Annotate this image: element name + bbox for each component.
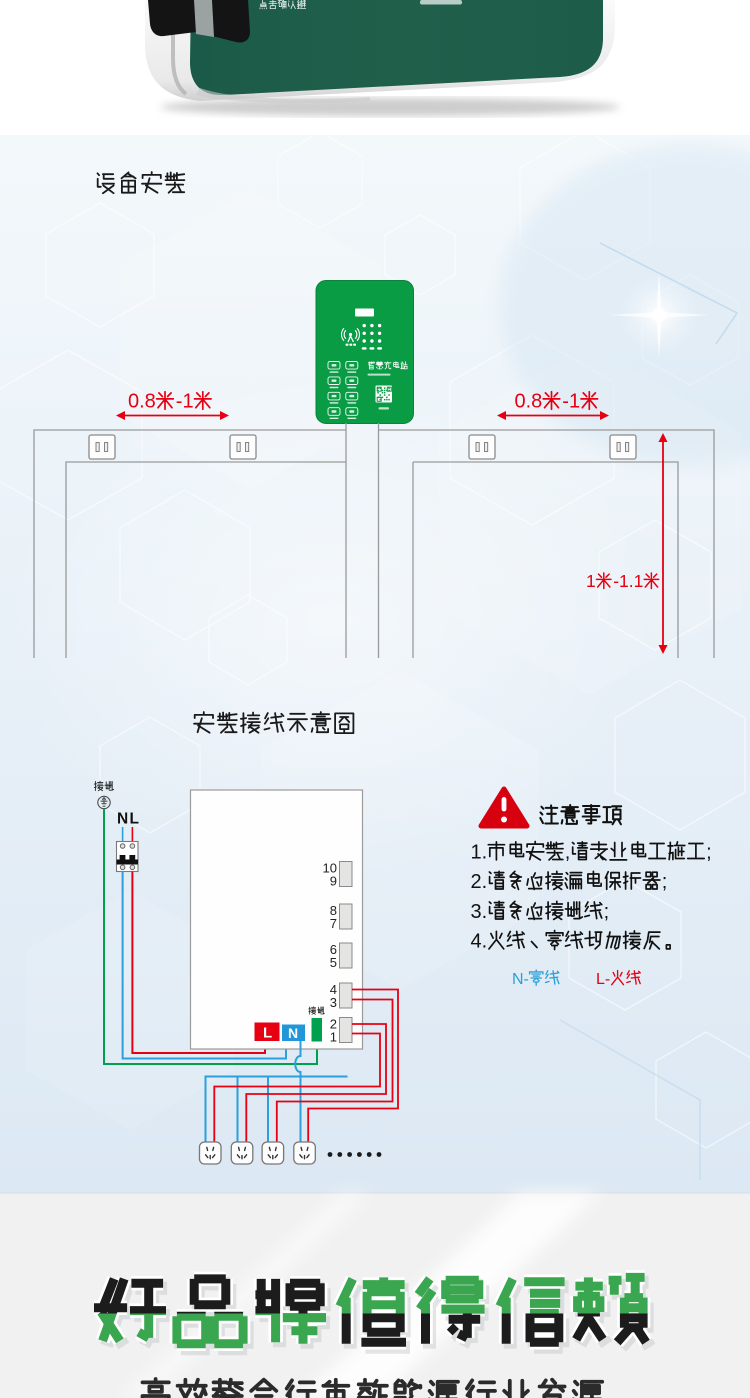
svg-text:;: ; [662, 871, 668, 893]
svg-text:-1: -1 [562, 391, 580, 413]
svg-text:0.8: 0.8 [128, 391, 156, 413]
svg-text:3: 3 [330, 995, 337, 1010]
svg-text:1: 1 [330, 1030, 337, 1045]
svg-text:0.8: 0.8 [515, 391, 543, 413]
svg-text:7: 7 [330, 916, 337, 931]
svg-text:9: 9 [330, 874, 337, 889]
svg-text:3.: 3. [471, 901, 488, 923]
svg-text:1.: 1. [471, 842, 488, 864]
svg-text:2.: 2. [471, 871, 488, 893]
svg-text:L-: L- [596, 971, 610, 988]
svg-text:N: N [117, 811, 128, 828]
svg-text:;: ; [706, 842, 712, 864]
svg-text:-1: -1 [176, 391, 194, 413]
svg-text:L: L [263, 1025, 272, 1042]
svg-text:4.: 4. [471, 931, 488, 953]
svg-text:N: N [288, 1025, 298, 1041]
svg-text:;: ; [604, 901, 610, 923]
svg-text:-1.1: -1.1 [613, 571, 643, 591]
svg-text:N-: N- [512, 971, 529, 988]
svg-text:,: , [565, 842, 571, 864]
svg-text:1: 1 [586, 571, 596, 591]
svg-text:L: L [130, 811, 139, 828]
svg-text:5: 5 [330, 955, 337, 970]
